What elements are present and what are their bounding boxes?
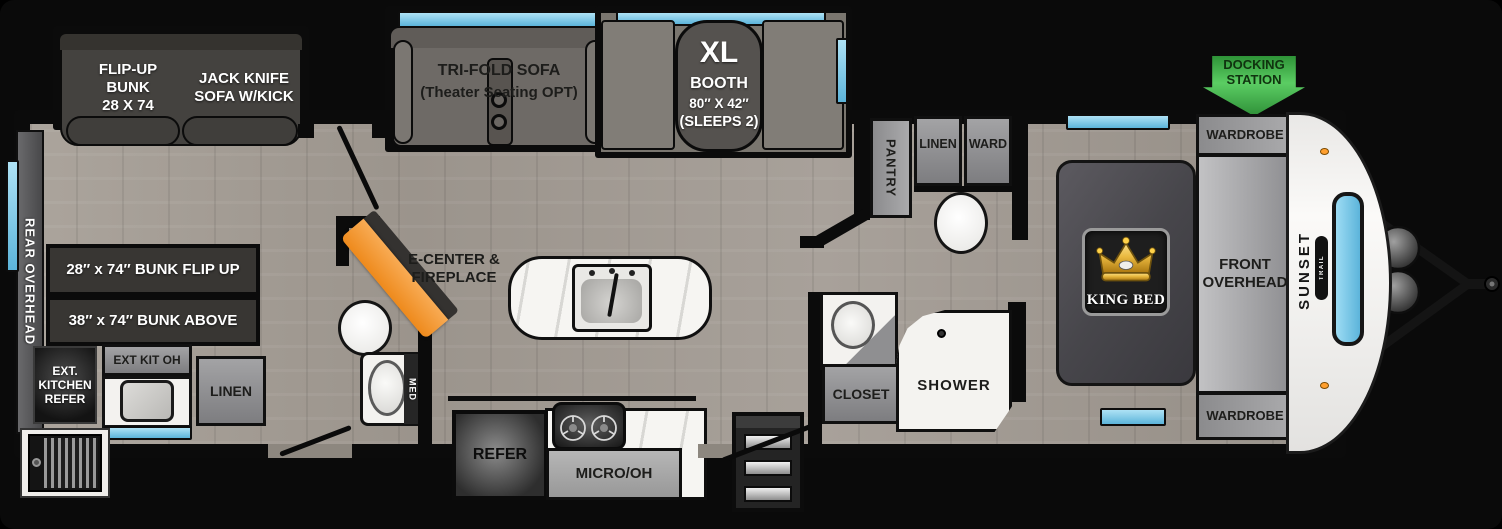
door-frame-post	[298, 124, 314, 138]
booth-dims-label: 80″ X 42″	[675, 95, 763, 113]
closet-label: CLOSET	[833, 386, 890, 403]
booth-size-label: XL	[675, 34, 763, 72]
cooktop-icon	[552, 402, 626, 450]
docking-station-arrow-icon: DOCKING STATION	[1203, 56, 1305, 116]
booth-dims-text: 80″ X 42″	[689, 96, 748, 112]
bunk-flip-up: 28″ x 74″ BUNK FLIP UP	[46, 244, 260, 296]
marker-light-icon	[1320, 148, 1329, 155]
flip-up-bunk-line1: FLIP-UP	[99, 61, 157, 79]
booth-name-text: BOOTH	[690, 75, 748, 94]
ext-refer-line1: EXT.	[52, 364, 77, 378]
bunk-flip-up-label: 28″ x 74″ BUNK FLIP UP	[66, 261, 239, 279]
docking-line1: DOCKING	[1223, 57, 1284, 72]
ward-bath-label: WARD	[969, 137, 1007, 152]
booth-size-text: XL	[700, 35, 738, 70]
crown-icon	[1092, 234, 1160, 288]
faucet-knob-icon	[589, 270, 595, 276]
window	[1066, 114, 1170, 130]
wardrobe-bottom: WARDROBE	[1196, 392, 1294, 440]
king-bed-label-wrap: KING BED	[1085, 289, 1167, 311]
king-bed-emblem: KING BED	[1082, 228, 1170, 316]
shower-label: SHOWER	[917, 377, 991, 395]
booth-bench	[601, 20, 675, 150]
window	[104, 426, 192, 440]
floorplan-canvas: FLIP-UP BUNK 28 X 74 JACK KNIFE SOFA W/K…	[0, 0, 1502, 529]
griddle-grates-icon	[44, 438, 98, 488]
window	[398, 11, 600, 28]
bunk-above-label: 38″ x 74″ BUNK ABOVE	[69, 312, 238, 330]
faucet-knob-icon	[629, 270, 635, 276]
window	[1100, 408, 1166, 426]
booth-sleeps-text: (SLEEPS 2)	[680, 114, 759, 131]
entry-steps	[732, 412, 804, 512]
front-overhead-line2: OVERHEAD	[1202, 274, 1287, 292]
linen-bath-label: LINEN	[919, 137, 957, 152]
toilet	[934, 192, 988, 254]
trifold-label-line2: (Theater Seating OPT)	[398, 82, 600, 104]
linen-rear-label: LINEN	[210, 383, 252, 400]
docking-line2: STATION	[1226, 72, 1281, 87]
brand-logo: SUNSET	[1292, 200, 1316, 340]
ext-kitchen-overhead: EXT KIT OH	[102, 344, 192, 376]
vanity-sink	[368, 360, 406, 416]
step-top-rail	[736, 416, 800, 428]
flip-up-bunk-label: FLIP-UP BUNK 28 X 74	[66, 52, 190, 124]
shower-label-wrap: SHOWER	[899, 313, 1009, 429]
ext-refer-line2: KITCHEN	[38, 378, 91, 392]
wall-segment	[800, 236, 824, 248]
step-tread	[744, 460, 792, 476]
micro-oh-label: MICRO/OH	[576, 465, 653, 483]
bunk-above: 38″ x 74″ BUNK ABOVE	[46, 296, 260, 346]
corner-vanity	[820, 292, 898, 370]
marker-light-icon	[1320, 382, 1329, 389]
jack-knife-sofa-label: JACK KNIFE SOFA W/KICK	[186, 62, 302, 114]
step-tread	[744, 486, 792, 502]
wall-segment	[1012, 112, 1028, 240]
jack-knife-line2: SOFA W/KICK	[194, 88, 293, 106]
window	[836, 38, 848, 104]
ext-kitchen-refer: EXT. KITCHEN REFER	[33, 346, 97, 424]
corner-sink-basin	[831, 301, 875, 349]
linen-cabinet-rear: LINEN	[196, 356, 266, 426]
wardrobe-bottom-label: WARDROBE	[1206, 408, 1283, 423]
shower: SHOWER	[896, 310, 1012, 432]
cupholder-icon	[491, 114, 507, 130]
counter-edge	[448, 396, 696, 401]
booth-name-label: BOOTH	[675, 74, 763, 94]
ext-kitchen-sink	[120, 380, 174, 422]
refrigerator: REFER	[452, 410, 548, 500]
rear-overhead-label: REAR OVERHEAD	[22, 218, 37, 345]
brand-series-pill: TRAIL	[1315, 236, 1328, 300]
wardrobe-top: WARDROBE	[1196, 114, 1294, 156]
trifold-backrest	[391, 28, 608, 48]
microwave-overhead: MICRO/OH	[546, 448, 682, 500]
front-overhead-line1: FRONT	[1219, 256, 1271, 274]
refer-label: REFER	[473, 446, 527, 465]
pantry-label: PANTRY	[883, 139, 898, 197]
med-label: MED	[407, 378, 418, 401]
booth-bench	[762, 20, 844, 150]
trifold-text1: TRI-FOLD SOFA	[438, 62, 561, 81]
wardrobe-top-label: WARDROBE	[1206, 127, 1283, 142]
jack-knife-line1: JACK KNIFE	[199, 70, 289, 88]
brand-name-label: SUNSET	[1296, 231, 1313, 310]
ecenter-label: E-CENTER & FIREPLACE	[398, 246, 510, 292]
docking-station-label: DOCKING STATION	[1203, 56, 1305, 88]
wardrobe-cabinet-bath: WARD	[964, 116, 1012, 186]
wall-segment	[854, 112, 870, 220]
flip-up-bunk-line2: BUNK	[106, 79, 149, 97]
pantry-cabinet: PANTRY	[870, 118, 912, 218]
ext-refer-line3: REFER	[45, 392, 86, 406]
front-overhead-cabinet: FRONT OVERHEAD	[1196, 154, 1294, 394]
closet: CLOSET	[822, 364, 900, 424]
brand-series-label: TRAIL	[1319, 255, 1325, 280]
sofa-cushion	[182, 116, 298, 146]
toilet	[338, 300, 392, 356]
flip-up-bunk-line3: 28 X 74	[102, 97, 154, 115]
griddle-knob-icon	[32, 458, 41, 467]
ext-kit-oh-label: EXT KIT OH	[113, 353, 180, 367]
wall-segment	[418, 330, 432, 444]
linen-cabinet-bath: LINEN	[914, 116, 962, 186]
front-window	[1332, 192, 1364, 346]
ecenter-line2: FIREPLACE	[411, 269, 496, 287]
ecenter-line1: E-CENTER &	[408, 251, 500, 269]
island-sink	[572, 264, 652, 332]
trifold-text2: (Theater Seating OPT)	[420, 84, 578, 102]
sofa-backrest	[60, 34, 302, 50]
trifold-label-line1: TRI-FOLD SOFA	[398, 60, 600, 82]
door-frame-post	[372, 124, 388, 138]
king-bed-label: KING BED	[1087, 292, 1166, 309]
booth-sleeps-label: (SLEEPS 2)	[675, 113, 763, 133]
shower-drain-icon	[937, 329, 946, 338]
window	[6, 160, 19, 272]
